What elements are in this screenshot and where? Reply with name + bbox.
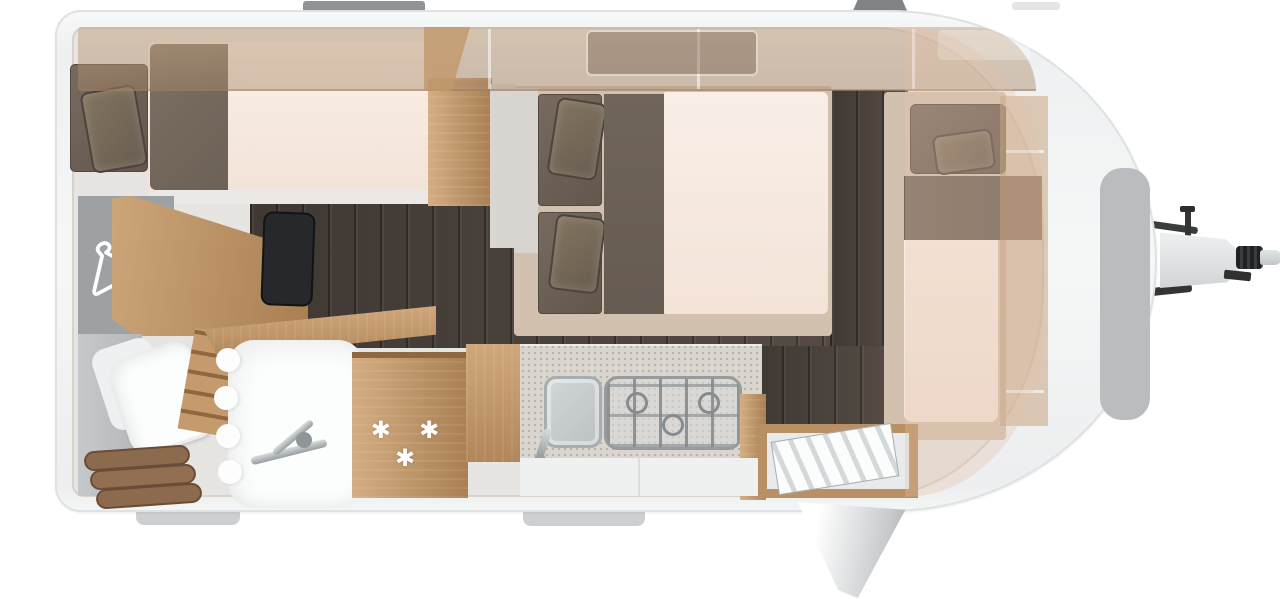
kitchen-cabinet-front bbox=[520, 458, 766, 496]
roof-skylight bbox=[588, 32, 756, 74]
overhead-lockers bbox=[78, 27, 1036, 91]
mid-wardrobe-side-panel bbox=[490, 84, 516, 248]
kitchen-side-worktop bbox=[466, 344, 522, 462]
overhead-locker-divider-1 bbox=[488, 29, 491, 89]
kitchen-sink bbox=[544, 376, 602, 448]
tv-screen bbox=[260, 211, 315, 307]
roof-marker-front bbox=[1012, 2, 1060, 10]
hob-burner-1 bbox=[626, 392, 648, 414]
gas-locker-lid bbox=[1100, 168, 1150, 420]
gas-hob bbox=[604, 376, 742, 450]
fridge-snowflake-label: ✱ ✱ ✱ bbox=[350, 416, 470, 446]
center-bed-pillow-2 bbox=[548, 213, 607, 295]
shower-curtain-scallop-1 bbox=[216, 348, 240, 372]
hob-burner-2 bbox=[662, 414, 684, 436]
jockey-wheel-crank-knob bbox=[1180, 206, 1195, 212]
corner-washbasin bbox=[228, 340, 364, 508]
shower-curtain-scallop-2 bbox=[214, 386, 238, 410]
shower-curtain-scallop-3 bbox=[216, 424, 240, 448]
mid-wardrobe bbox=[428, 78, 492, 206]
hob-burner-3 bbox=[698, 392, 720, 414]
entry-door-leaf-open bbox=[794, 500, 910, 598]
skirt-rail-left bbox=[136, 512, 240, 525]
shower-curtain-scallop-4 bbox=[218, 460, 242, 484]
coupling-tongue bbox=[1260, 250, 1280, 265]
center-bed-head-panel bbox=[514, 88, 538, 253]
center-bed-mattress bbox=[664, 92, 828, 314]
rear-bed-shelf-edge bbox=[148, 190, 432, 204]
caravan-floorplan: ✱ ✱ ✱ bbox=[0, 0, 1280, 599]
jockey-wheel-crank bbox=[1185, 210, 1191, 236]
center-bed-runner bbox=[604, 94, 664, 314]
coupling-head bbox=[1236, 246, 1263, 269]
basin-mixer-tap-knob bbox=[296, 432, 312, 448]
skirt-rail-mid bbox=[523, 512, 645, 526]
